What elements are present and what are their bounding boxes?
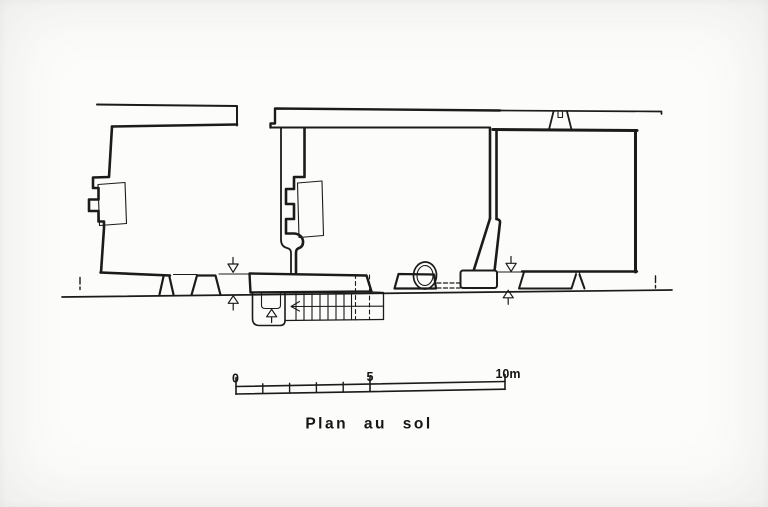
site-lines [62, 105, 672, 298]
threshold-arrow-down-right-icon [506, 257, 516, 272]
chimney-pier-notch [558, 112, 563, 118]
central-north-wall-outer [271, 109, 501, 128]
scale-bar: 0 5 10m [232, 367, 520, 394]
hidden-edge-dashed [437, 283, 460, 288]
central-west-wall-chimney-breast [286, 128, 305, 273]
left-south-wall-pier [160, 277, 174, 295]
central-threshold-band [250, 274, 372, 293]
left-west-wall-chimney-breast [89, 127, 112, 273]
floor-plan-sheet: 0 5 10m Plan au sol [0, 0, 768, 507]
scale-label-ten-meters: 10m [495, 367, 520, 381]
building-right [493, 112, 637, 289]
north-east-site-line [500, 111, 662, 115]
left-niche-slab [98, 183, 127, 226]
building-left [89, 125, 237, 295]
left-south-wall [101, 273, 171, 276]
scale-label-five: 5 [367, 370, 374, 384]
right-south-foundation-band [519, 272, 585, 289]
threshold-arrow-down-left-icon [228, 258, 238, 273]
scale-label-zero: 0 [232, 372, 239, 386]
left-north-wall [112, 125, 237, 127]
threshold-arrow-up-left-icon [228, 296, 238, 310]
floor-plan-canvas: 0 5 10m Plan au sol [0, 0, 768, 507]
plan-title: Plan au sol [305, 416, 432, 433]
buttress-footing [461, 271, 498, 289]
central-niche-slab [298, 181, 324, 238]
free-standing-pier [192, 276, 221, 296]
chimney-pier [549, 112, 572, 130]
north-west-site-line [97, 105, 237, 126]
entrance-and-stairs [250, 274, 384, 326]
right-north-wall [493, 130, 637, 131]
leaning-buttress [474, 219, 501, 272]
well-oven-feature [395, 261, 438, 289]
porch-arrow-up-icon [267, 309, 277, 322]
building-central [271, 109, 501, 290]
